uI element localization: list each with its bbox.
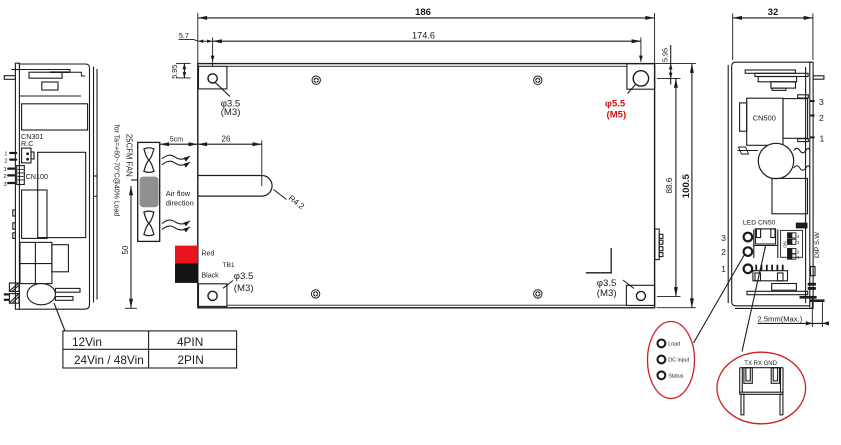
svg-text:for Ta=+60~70°C@40% Load: for Ta=+60~70°C@40% Load — [113, 125, 121, 217]
svg-text:TB1: TB1 — [223, 262, 235, 269]
svg-text:2: 2 — [4, 158, 7, 164]
svg-text:5cm: 5cm — [170, 137, 183, 144]
svg-text:(M3): (M3) — [597, 288, 617, 299]
svg-text:12Vin: 12Vin — [72, 335, 102, 349]
svg-text:φ5.5: φ5.5 — [605, 98, 626, 109]
svg-text:2: 2 — [819, 113, 824, 123]
svg-text:88.6: 88.6 — [665, 177, 674, 193]
svg-text:24Vin / 48Vin: 24Vin / 48Vin — [74, 353, 144, 367]
svg-text:R.C: R.C — [21, 139, 33, 148]
svg-text:φ3.5: φ3.5 — [234, 271, 254, 282]
svg-text:DIP S.W: DIP S.W — [814, 231, 821, 258]
svg-text:100.5: 100.5 — [681, 174, 692, 199]
svg-text:186: 186 — [415, 7, 431, 18]
svg-text:3: 3 — [4, 182, 7, 188]
svg-text:5.95: 5.95 — [661, 48, 670, 62]
svg-text:2.5mm(Max.): 2.5mm(Max.) — [758, 314, 803, 323]
svg-text:50: 50 — [121, 245, 130, 254]
svg-text:1: 1 — [820, 133, 825, 143]
svg-text:2: 2 — [721, 247, 726, 257]
svg-text:ON: ON — [782, 241, 787, 248]
svg-text:32: 32 — [768, 7, 779, 18]
svg-text:R4.2: R4.2 — [287, 193, 307, 211]
svg-text:Load: Load — [668, 342, 680, 348]
svg-text:3: 3 — [721, 233, 726, 243]
svg-text:174.6: 174.6 — [412, 30, 435, 40]
svg-text:(M3): (M3) — [234, 283, 254, 294]
svg-text:2: 2 — [797, 249, 800, 254]
svg-text:2PIN: 2PIN — [178, 353, 204, 367]
svg-text:(M5): (M5) — [607, 110, 627, 121]
svg-text:direction: direction — [166, 199, 194, 208]
svg-text:CN500: CN500 — [753, 114, 776, 123]
svg-text:1: 1 — [721, 264, 726, 274]
svg-text:(M3): (M3) — [221, 107, 241, 118]
svg-text:26: 26 — [222, 134, 231, 143]
svg-text:2: 2 — [4, 174, 7, 180]
svg-text:DC input: DC input — [668, 358, 689, 364]
svg-text:3: 3 — [819, 97, 824, 107]
svg-text:3: 3 — [797, 240, 800, 245]
svg-text:25CFM FAN: 25CFM FAN — [124, 134, 133, 177]
svg-text:CN100: CN100 — [26, 172, 48, 181]
svg-text:LED CN50: LED CN50 — [743, 220, 776, 227]
svg-text:4PIN: 4PIN — [177, 335, 203, 349]
svg-text:4: 4 — [797, 234, 800, 239]
svg-text:5.7: 5.7 — [179, 31, 189, 40]
svg-text:5.95: 5.95 — [170, 65, 179, 79]
svg-text:Red: Red — [202, 251, 215, 258]
svg-text:1: 1 — [4, 151, 7, 157]
svg-text:Air flow: Air flow — [166, 189, 191, 198]
svg-text:Status: Status — [668, 374, 684, 380]
svg-text:TX RX GND: TX RX GND — [744, 361, 777, 367]
svg-text:1: 1 — [4, 167, 7, 173]
svg-text:Black: Black — [202, 273, 220, 280]
